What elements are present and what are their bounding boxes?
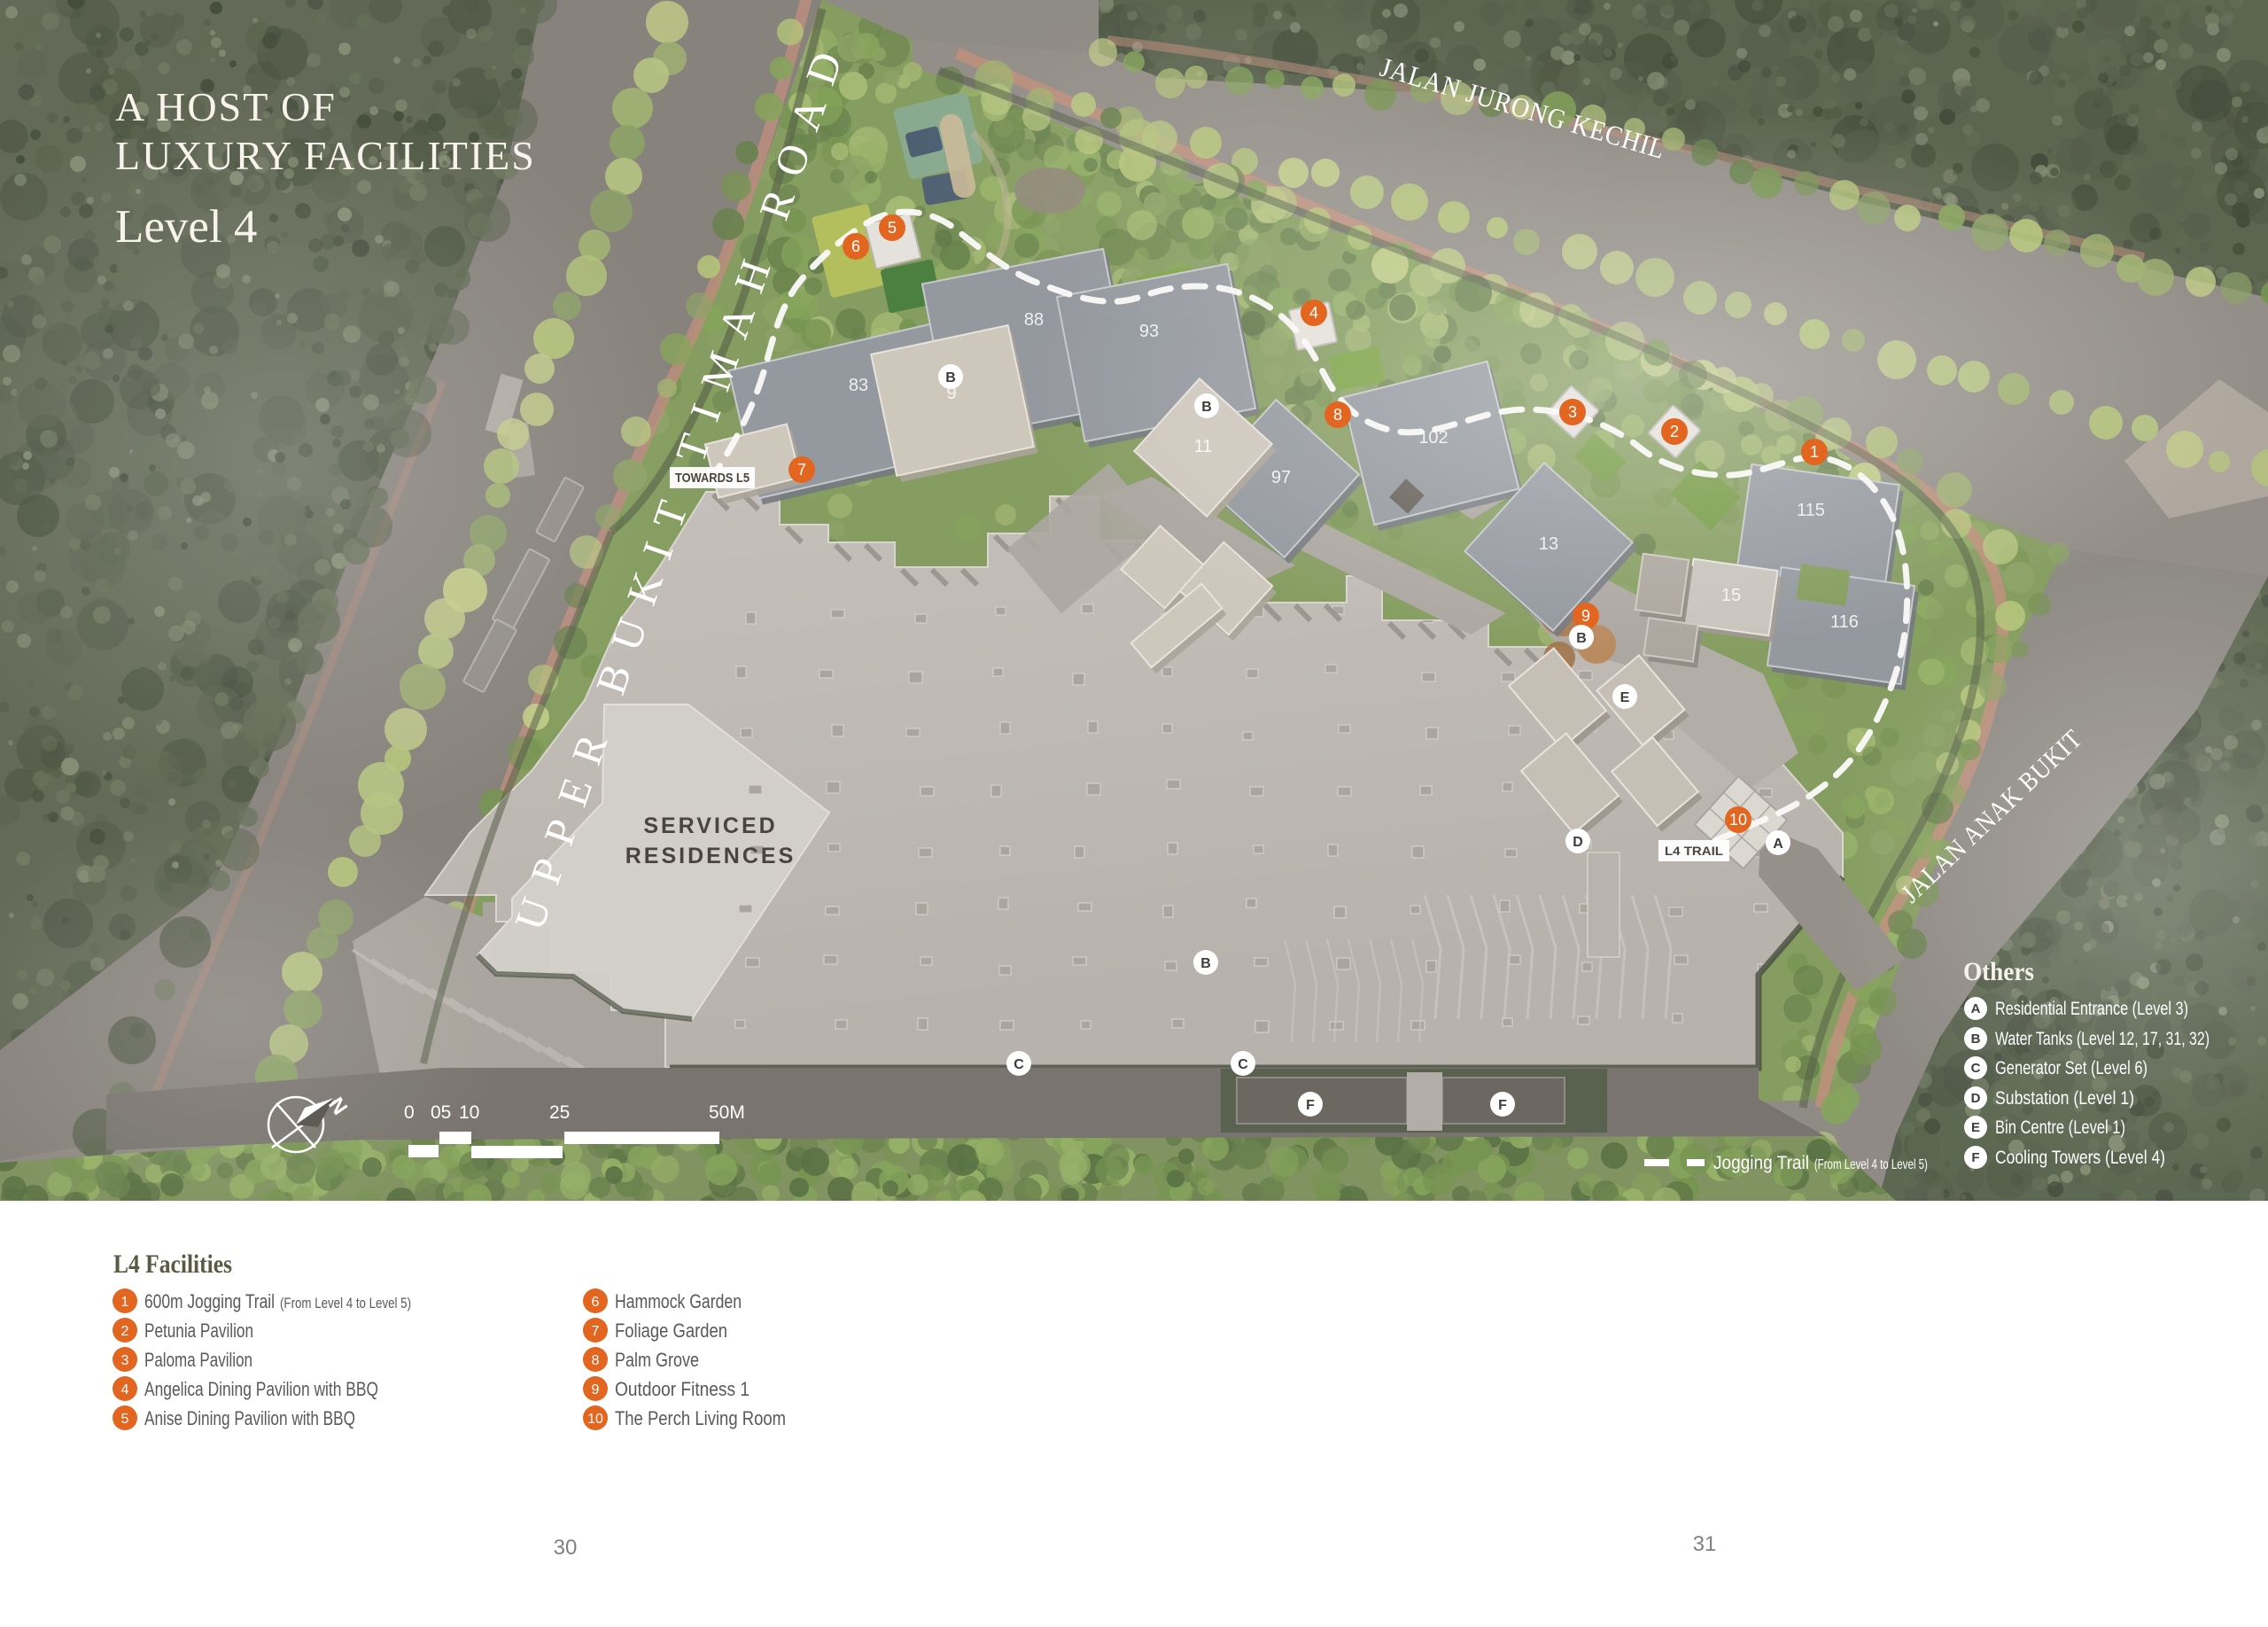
- svg-text:Paloma Pavilion: Paloma Pavilion: [144, 1349, 252, 1371]
- svg-text:Residential Entrance (Level 3): Residential Entrance (Level 3): [1995, 999, 2188, 1019]
- svg-text:D: D: [1573, 835, 1583, 850]
- svg-text:83: 83: [849, 376, 868, 395]
- svg-text:Angelica Dining Pavilion with: Angelica Dining Pavilion with BBQ: [144, 1378, 378, 1400]
- svg-text:C: C: [1971, 1061, 1981, 1076]
- svg-text:97: 97: [1271, 468, 1291, 487]
- svg-text:C: C: [1238, 1057, 1248, 1072]
- svg-text:05: 05: [431, 1102, 451, 1123]
- svg-text:9: 9: [592, 1382, 600, 1397]
- svg-text:5: 5: [888, 219, 897, 237]
- svg-text:6: 6: [592, 1295, 600, 1310]
- svg-text:30: 30: [554, 1536, 578, 1560]
- svg-text:B: B: [1200, 956, 1211, 971]
- svg-text:F: F: [1306, 1098, 1315, 1113]
- svg-text:9: 9: [946, 384, 956, 403]
- svg-text:115: 115: [1797, 501, 1825, 520]
- svg-text:8: 8: [1333, 406, 1342, 424]
- svg-text:Level 4: Level 4: [115, 201, 257, 253]
- svg-text:6: 6: [851, 237, 860, 255]
- svg-text:Others: Others: [1963, 957, 2034, 986]
- svg-text:50M: 50M: [709, 1102, 745, 1123]
- svg-text:B: B: [1201, 400, 1212, 415]
- svg-text:4: 4: [1309, 304, 1318, 322]
- svg-text:10: 10: [587, 1412, 603, 1427]
- svg-text:The Perch Living Room: The Perch Living Room: [615, 1407, 786, 1429]
- svg-text:15: 15: [1721, 586, 1741, 605]
- svg-text:A HOST OF: A HOST OF: [115, 84, 337, 129]
- svg-text:7: 7: [592, 1324, 600, 1339]
- svg-text:Hammock Garden: Hammock Garden: [615, 1290, 742, 1312]
- svg-text:F: F: [1498, 1098, 1507, 1113]
- svg-text:LUXURY FACILITIES: LUXURY FACILITIES: [115, 133, 536, 178]
- svg-text:1: 1: [1810, 443, 1819, 461]
- svg-text:4: 4: [121, 1382, 129, 1397]
- svg-text:3: 3: [121, 1353, 129, 1368]
- svg-text:9: 9: [1581, 607, 1590, 625]
- svg-text:Anise Dining Pavilion with BBQ: Anise Dining Pavilion with BBQ: [144, 1407, 355, 1429]
- svg-text:(From Level 4 to Level 5): (From Level 4 to Level 5): [280, 1295, 411, 1312]
- svg-text:2: 2: [1670, 423, 1679, 440]
- svg-text:Generator Set (Level 6): Generator Set (Level 6): [1995, 1058, 2148, 1078]
- svg-text:B: B: [1971, 1031, 1981, 1047]
- svg-text:SERVICED: SERVICED: [643, 813, 777, 838]
- svg-text:7: 7: [797, 461, 806, 479]
- svg-text:E: E: [1971, 1120, 1980, 1135]
- svg-text:Substation (Level 1): Substation (Level 1): [1995, 1088, 2134, 1109]
- svg-text:88: 88: [1024, 310, 1044, 330]
- svg-text:25: 25: [549, 1102, 570, 1123]
- svg-text:Foliage Garden: Foliage Garden: [615, 1320, 727, 1342]
- svg-text:C: C: [1014, 1057, 1024, 1072]
- svg-text:116: 116: [1830, 612, 1859, 632]
- svg-text:11: 11: [1194, 437, 1213, 456]
- svg-text:5: 5: [121, 1412, 129, 1427]
- svg-text:L4 Facilities: L4 Facilities: [113, 1249, 232, 1279]
- svg-text:A: A: [1971, 1001, 1981, 1016]
- svg-text:D: D: [1971, 1091, 1981, 1106]
- svg-text:Bin Centre (Level 1): Bin Centre (Level 1): [1995, 1117, 2125, 1138]
- svg-text:13: 13: [1539, 534, 1558, 554]
- svg-text:Water Tanks (Level 12, 17, 31,: Water Tanks (Level 12, 17, 31, 32): [1995, 1029, 2210, 1049]
- svg-text:102: 102: [1418, 428, 1448, 448]
- svg-text:8: 8: [592, 1353, 600, 1368]
- svg-text:F: F: [1971, 1150, 1979, 1165]
- svg-text:10: 10: [1729, 811, 1747, 829]
- svg-text:Outdoor Fitness 1: Outdoor Fitness 1: [615, 1378, 750, 1400]
- svg-text:1: 1: [121, 1295, 129, 1310]
- svg-text:93: 93: [1139, 322, 1159, 341]
- svg-text:31: 31: [1693, 1532, 1717, 1556]
- svg-text:Petunia Pavilion: Petunia Pavilion: [144, 1320, 253, 1342]
- svg-text:A: A: [1773, 837, 1783, 852]
- svg-text:2: 2: [121, 1324, 129, 1339]
- svg-text:600m Jogging Trail: 600m Jogging Trail: [144, 1290, 275, 1312]
- svg-text:10: 10: [459, 1102, 479, 1123]
- svg-text:Palm Grove: Palm Grove: [615, 1349, 699, 1371]
- svg-text:L4 TRAIL: L4 TRAIL: [1665, 844, 1723, 858]
- svg-text:B: B: [1576, 631, 1587, 646]
- svg-text:Cooling Towers (Level 4): Cooling Towers (Level 4): [1995, 1148, 2165, 1168]
- svg-text:E: E: [1620, 690, 1630, 705]
- svg-text:3: 3: [1568, 403, 1577, 421]
- svg-text:0: 0: [404, 1102, 415, 1123]
- svg-text:RESIDENCES: RESIDENCES: [625, 844, 796, 868]
